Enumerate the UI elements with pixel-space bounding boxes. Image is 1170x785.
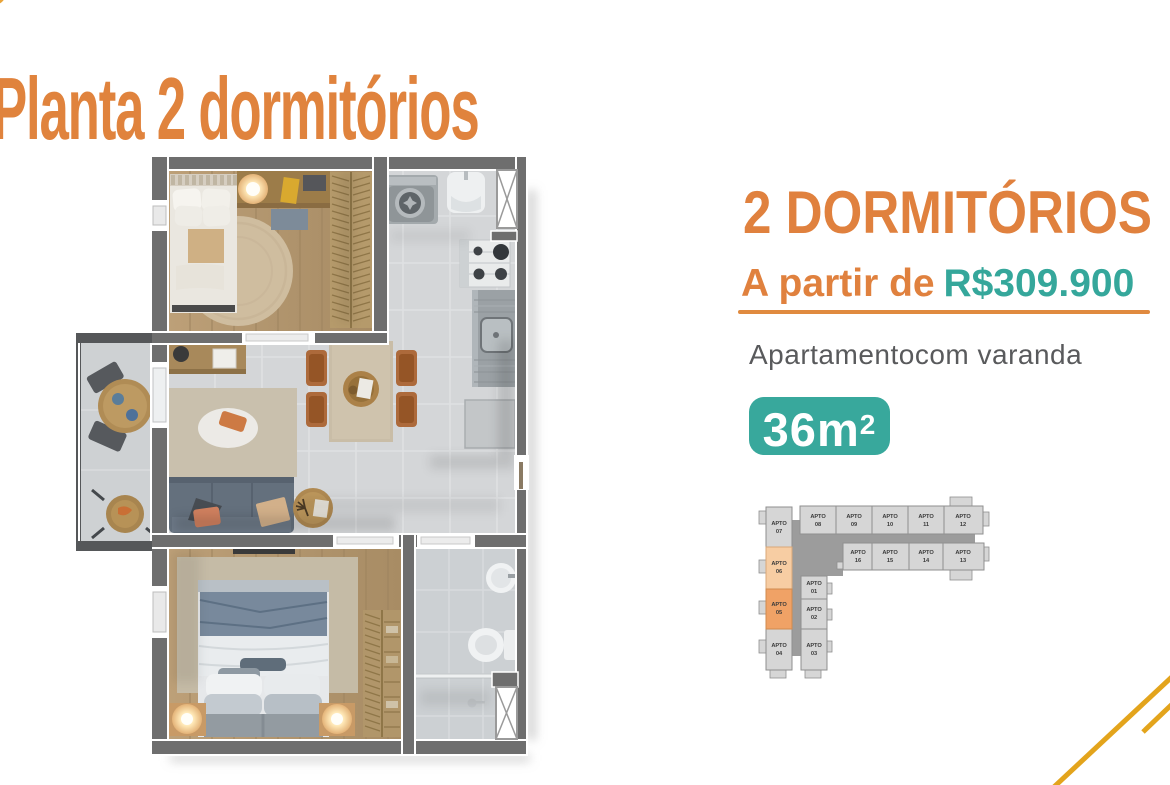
svg-text:APTO: APTO [846,514,862,520]
svg-text:APTO: APTO [882,550,898,556]
svg-text:01: 01 [811,589,817,595]
svg-text:APTO: APTO [806,607,822,613]
svg-text:14: 14 [923,558,930,564]
svg-text:APTO: APTO [955,514,971,520]
svg-text:09: 09 [851,522,857,528]
svg-text:APTO: APTO [918,514,934,520]
svg-text:04: 04 [776,651,783,657]
svg-text:11: 11 [923,522,929,528]
svg-text:12: 12 [960,522,966,528]
svg-text:APTO: APTO [771,643,787,649]
svg-text:APTO: APTO [955,550,971,556]
svg-text:07: 07 [776,529,782,535]
svg-text:16: 16 [855,558,861,564]
svg-text:08: 08 [815,522,821,528]
svg-text:10: 10 [887,522,893,528]
svg-text:APTO: APTO [771,561,787,567]
svg-text:02: 02 [811,615,817,621]
svg-text:06: 06 [776,569,782,575]
svg-text:05: 05 [776,610,782,616]
svg-text:APTO: APTO [771,521,787,527]
svg-text:APTO: APTO [771,602,787,608]
svg-text:APTO: APTO [810,514,826,520]
svg-text:APTO: APTO [918,550,934,556]
svg-text:APTO: APTO [806,643,822,649]
svg-text:03: 03 [811,651,817,657]
svg-text:APTO: APTO [882,514,898,520]
svg-text:13: 13 [960,558,966,564]
svg-text:APTO: APTO [806,581,822,587]
svg-text:15: 15 [887,558,893,564]
svg-text:APTO: APTO [850,550,866,556]
